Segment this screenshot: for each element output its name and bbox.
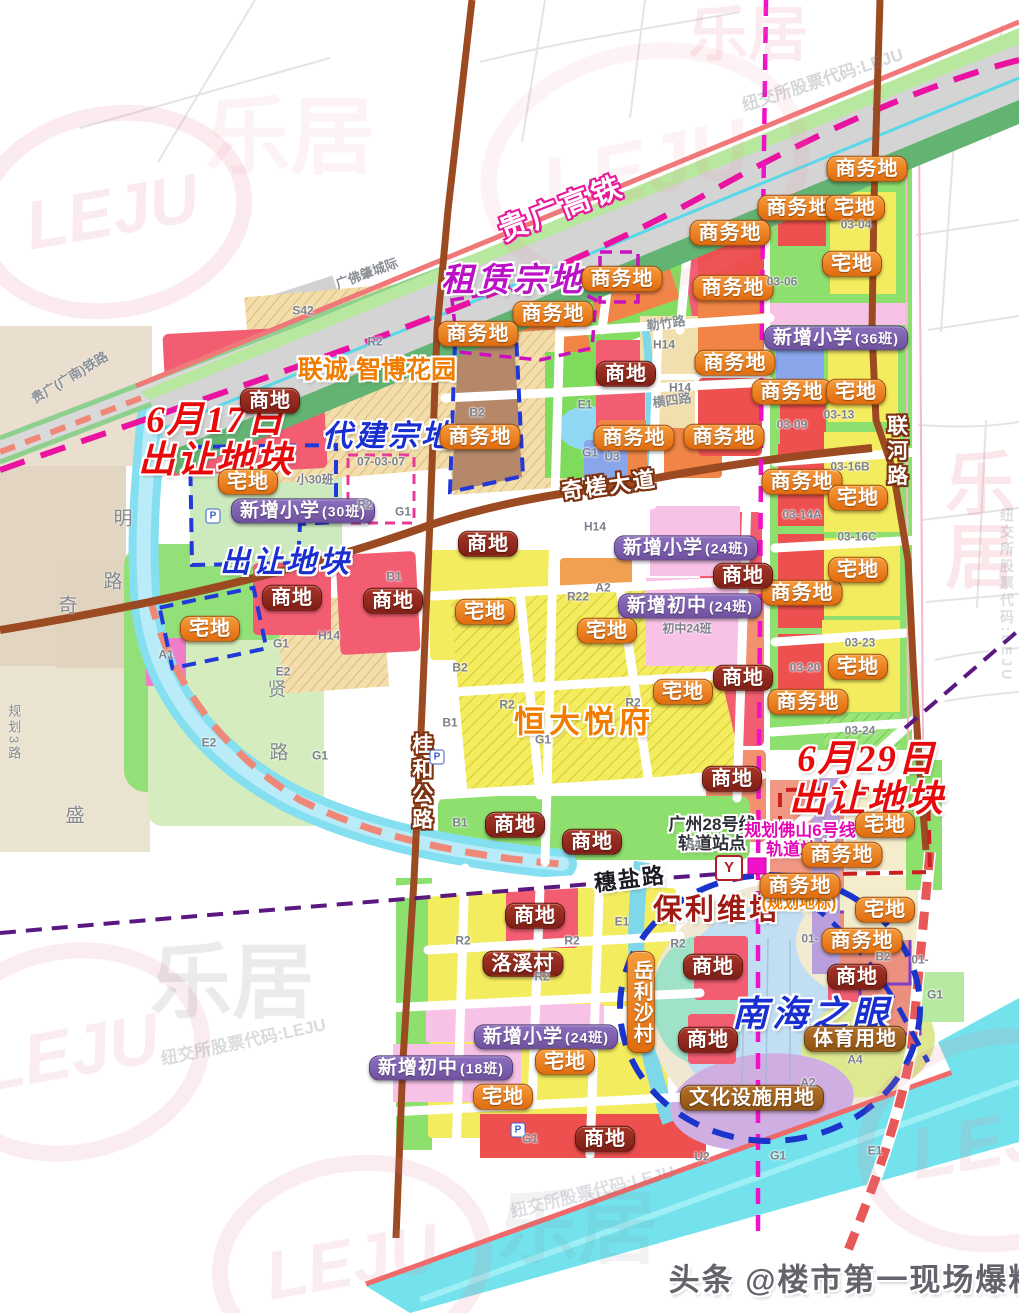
- label-shangwudi-16: 商务地: [802, 842, 883, 868]
- source-credit: 头条 @楼市第一现场爆料: [669, 1255, 1019, 1300]
- code-123: 03-09: [777, 418, 808, 431]
- daijian-parcel-title: 代建宗地: [322, 411, 454, 455]
- label-shangdi-8: 商地: [702, 766, 762, 792]
- lianhe-road-label: 联河路: [884, 415, 908, 490]
- label-shangwudi-12: 商务地: [684, 424, 765, 450]
- new-primary-school-24a: 新增小学(24班): [614, 535, 758, 560]
- code-133: R2: [670, 937, 685, 950]
- char-88: 贤: [267, 679, 286, 700]
- code-99: H14: [669, 381, 691, 394]
- label-shangwudi-3: 商务地: [690, 220, 771, 246]
- code-98: H14: [653, 338, 675, 351]
- code-124: 03-16B: [830, 460, 869, 473]
- roadname-81: 贵广(广南)铁路: [29, 349, 111, 406]
- gz-line28-station-label: 广州28号线轨道站点: [669, 815, 756, 853]
- char-89: 路: [269, 742, 288, 763]
- qicha-avenue-label: 奇槎大道: [560, 467, 659, 505]
- label-shangdi-1: 商地: [240, 388, 300, 414]
- label-shangwudi-17: 商务地: [760, 873, 841, 899]
- code-145: S4: [687, 838, 702, 851]
- code-135: A4: [847, 1053, 862, 1066]
- code-104: H14: [318, 629, 340, 642]
- code-113: R2: [625, 696, 640, 709]
- label-shangdi-6: 商地: [713, 563, 773, 589]
- code-131: R2: [564, 934, 579, 947]
- label-shangdi-3: 商地: [363, 588, 423, 614]
- guihe-highway-label: 桂和公路: [409, 733, 433, 833]
- label-shangwudi-4: 商务地: [693, 275, 774, 301]
- label-shangwudi-15: 商务地: [768, 689, 849, 715]
- new-middle-school-24: 新增初中(24班): [618, 593, 762, 618]
- label-shangwudi-11: 商务地: [594, 425, 675, 451]
- code-140: G1: [927, 988, 943, 1001]
- churang-parcel-title: 出让地块: [220, 537, 352, 581]
- label-shangwudi-8: 商务地: [440, 424, 521, 450]
- code-100: E1: [578, 398, 593, 411]
- metro-station-icon: Y: [715, 855, 743, 881]
- code-114: G1: [535, 733, 551, 746]
- label-shangwudi-1: 商务地: [827, 156, 908, 182]
- luoxi-village-label: 洛溪村: [483, 951, 564, 977]
- label-shangdi-9: 商地: [485, 812, 545, 838]
- code-109: B1: [386, 570, 401, 583]
- new-primary-school-36: 新增小学(36班): [764, 325, 908, 350]
- code-130: R2: [455, 934, 470, 947]
- code-107: E2: [202, 736, 217, 749]
- label-shangdi-11: 商地: [505, 903, 565, 929]
- label-zhaidi-10: 宅地: [577, 618, 637, 644]
- label-zhaidi-2: 宅地: [822, 251, 882, 277]
- code-144: G1: [522, 1132, 538, 1145]
- label-zhaidi-13: 宅地: [855, 897, 915, 923]
- code-93: R2: [357, 498, 372, 511]
- code-118: 初中24班: [662, 622, 711, 635]
- label-zhaidi-3: 宅地: [826, 379, 886, 405]
- code-95: B2: [469, 406, 484, 419]
- new-middle-school-18: 新增初中(18班): [369, 1055, 513, 1080]
- char-87: 盛: [65, 805, 84, 826]
- code-101: G1: [582, 446, 598, 459]
- label-shangdi-10: 商地: [562, 829, 622, 855]
- label-shangdi-13: 商地: [827, 964, 887, 990]
- code-137: U2: [694, 1150, 709, 1163]
- label-zhaidi-12: 宅地: [855, 812, 915, 838]
- label-zhaidi-11: 宅地: [653, 679, 713, 705]
- label-zhaidi-8: 宅地: [180, 616, 240, 642]
- char-86: 奇: [58, 595, 77, 616]
- code-91: S42: [292, 304, 313, 317]
- char-90: 规划3路: [6, 704, 21, 762]
- label-zhaidi-5: 宅地: [828, 557, 888, 583]
- roadname-80: 广佛肇城际: [334, 256, 400, 292]
- label-zhaidi-7: 宅地: [218, 469, 278, 495]
- code-128: 03-20: [790, 661, 821, 674]
- label-shangdi-7: 商地: [713, 665, 773, 691]
- label-shangdi-2: 商地: [262, 585, 322, 611]
- code-108: G1: [312, 749, 328, 762]
- new-primary-school-30: 新增小学(30班): [231, 498, 375, 523]
- code-120: 03-06: [767, 275, 798, 288]
- code-105: G1: [273, 637, 289, 650]
- planning-map: LEJULEJULEJULEJULEJU乐居乐居乐居乐居乐居纽交所股票代码:LE…: [0, 0, 1019, 1313]
- code-126: 03-16C: [837, 530, 876, 543]
- label-shangdi-12: 商地: [683, 954, 743, 980]
- code-117: B1: [452, 816, 467, 829]
- rental-parcel-title: 租赁宗地: [441, 253, 585, 301]
- code-96: 07-03-07: [357, 455, 405, 468]
- label-zhaidi-6: 宅地: [828, 654, 888, 680]
- label-shangwudi-14: 商务地: [762, 580, 843, 606]
- label-shangdi-14: 商地: [678, 1027, 738, 1053]
- code-136: A2: [800, 1076, 815, 1089]
- char-85: 路: [103, 571, 122, 592]
- new-primary-school-24b: 新增小学(24班): [474, 1024, 618, 1049]
- line6-station-marker: [748, 858, 767, 875]
- code-97: 小30班: [296, 473, 333, 486]
- label-zhaidi-4: 宅地: [828, 485, 888, 511]
- label-shangdi-15: 商地: [575, 1126, 635, 1152]
- code-138: G1: [770, 1149, 786, 1162]
- code-121: 03-04: [841, 218, 872, 231]
- code-106: E2: [276, 665, 291, 678]
- code-110: B1: [442, 716, 457, 729]
- label-shangwudi-6: 商务地: [582, 266, 663, 292]
- code-132: R2: [534, 970, 549, 983]
- char-84: 明: [113, 508, 132, 529]
- code-119: A1: [158, 648, 173, 661]
- code-127: 03-23: [845, 636, 876, 649]
- label-zhaidi-14: 宅地: [535, 1049, 595, 1075]
- guiguang-hsr-label: 贵广高铁: [492, 163, 630, 250]
- label-shangwudi-10: 商务地: [752, 379, 833, 405]
- code-142: 01-: [801, 932, 818, 945]
- code-115: R22: [567, 590, 589, 603]
- label-shangwudi-9: 商务地: [695, 350, 776, 376]
- parking-icon: P: [430, 750, 445, 765]
- label-shangdi-4: 商地: [596, 361, 656, 387]
- sports-land-label: 体育用地: [804, 1026, 906, 1052]
- code-122: 03-13: [824, 408, 855, 421]
- label-shangdi-5: 商地: [458, 531, 518, 557]
- label-layer: 6月17日出让地块6月29日出让地块代建宗地出让地块南海之眼租赁宗地联诚·智博花…: [0, 0, 1019, 1313]
- code-92: R2: [367, 335, 382, 348]
- code-141: B2: [875, 950, 890, 963]
- label-shangwudi-5: 商务地: [513, 301, 594, 327]
- code-94: G1: [395, 505, 411, 518]
- code-129: 03-24: [845, 724, 876, 737]
- code-112: R2: [499, 698, 514, 711]
- label-zhaidi-15: 宅地: [473, 1084, 533, 1110]
- liancheng-zhibo-garden-title: 联诚·智博花园: [298, 350, 456, 386]
- code-111: B2: [452, 661, 467, 674]
- code-116: A2: [595, 581, 610, 594]
- code-103: H14: [584, 520, 606, 533]
- label-shangwudi-7: 商务地: [438, 321, 519, 347]
- roadname-83: 勒竹路: [646, 314, 687, 334]
- label-zhaidi-9: 宅地: [455, 599, 515, 625]
- code-102: U3: [604, 450, 619, 463]
- code-139: E1: [868, 1144, 883, 1157]
- parking-icon: P: [206, 509, 221, 524]
- code-125: 03-14A: [782, 508, 821, 521]
- code-134: E1: [615, 915, 630, 928]
- yuelisha-village-label: 岳利沙村: [627, 951, 655, 1053]
- date-jun29-title: 6月29日出让地块: [789, 740, 945, 820]
- code-143: 01-: [911, 953, 928, 966]
